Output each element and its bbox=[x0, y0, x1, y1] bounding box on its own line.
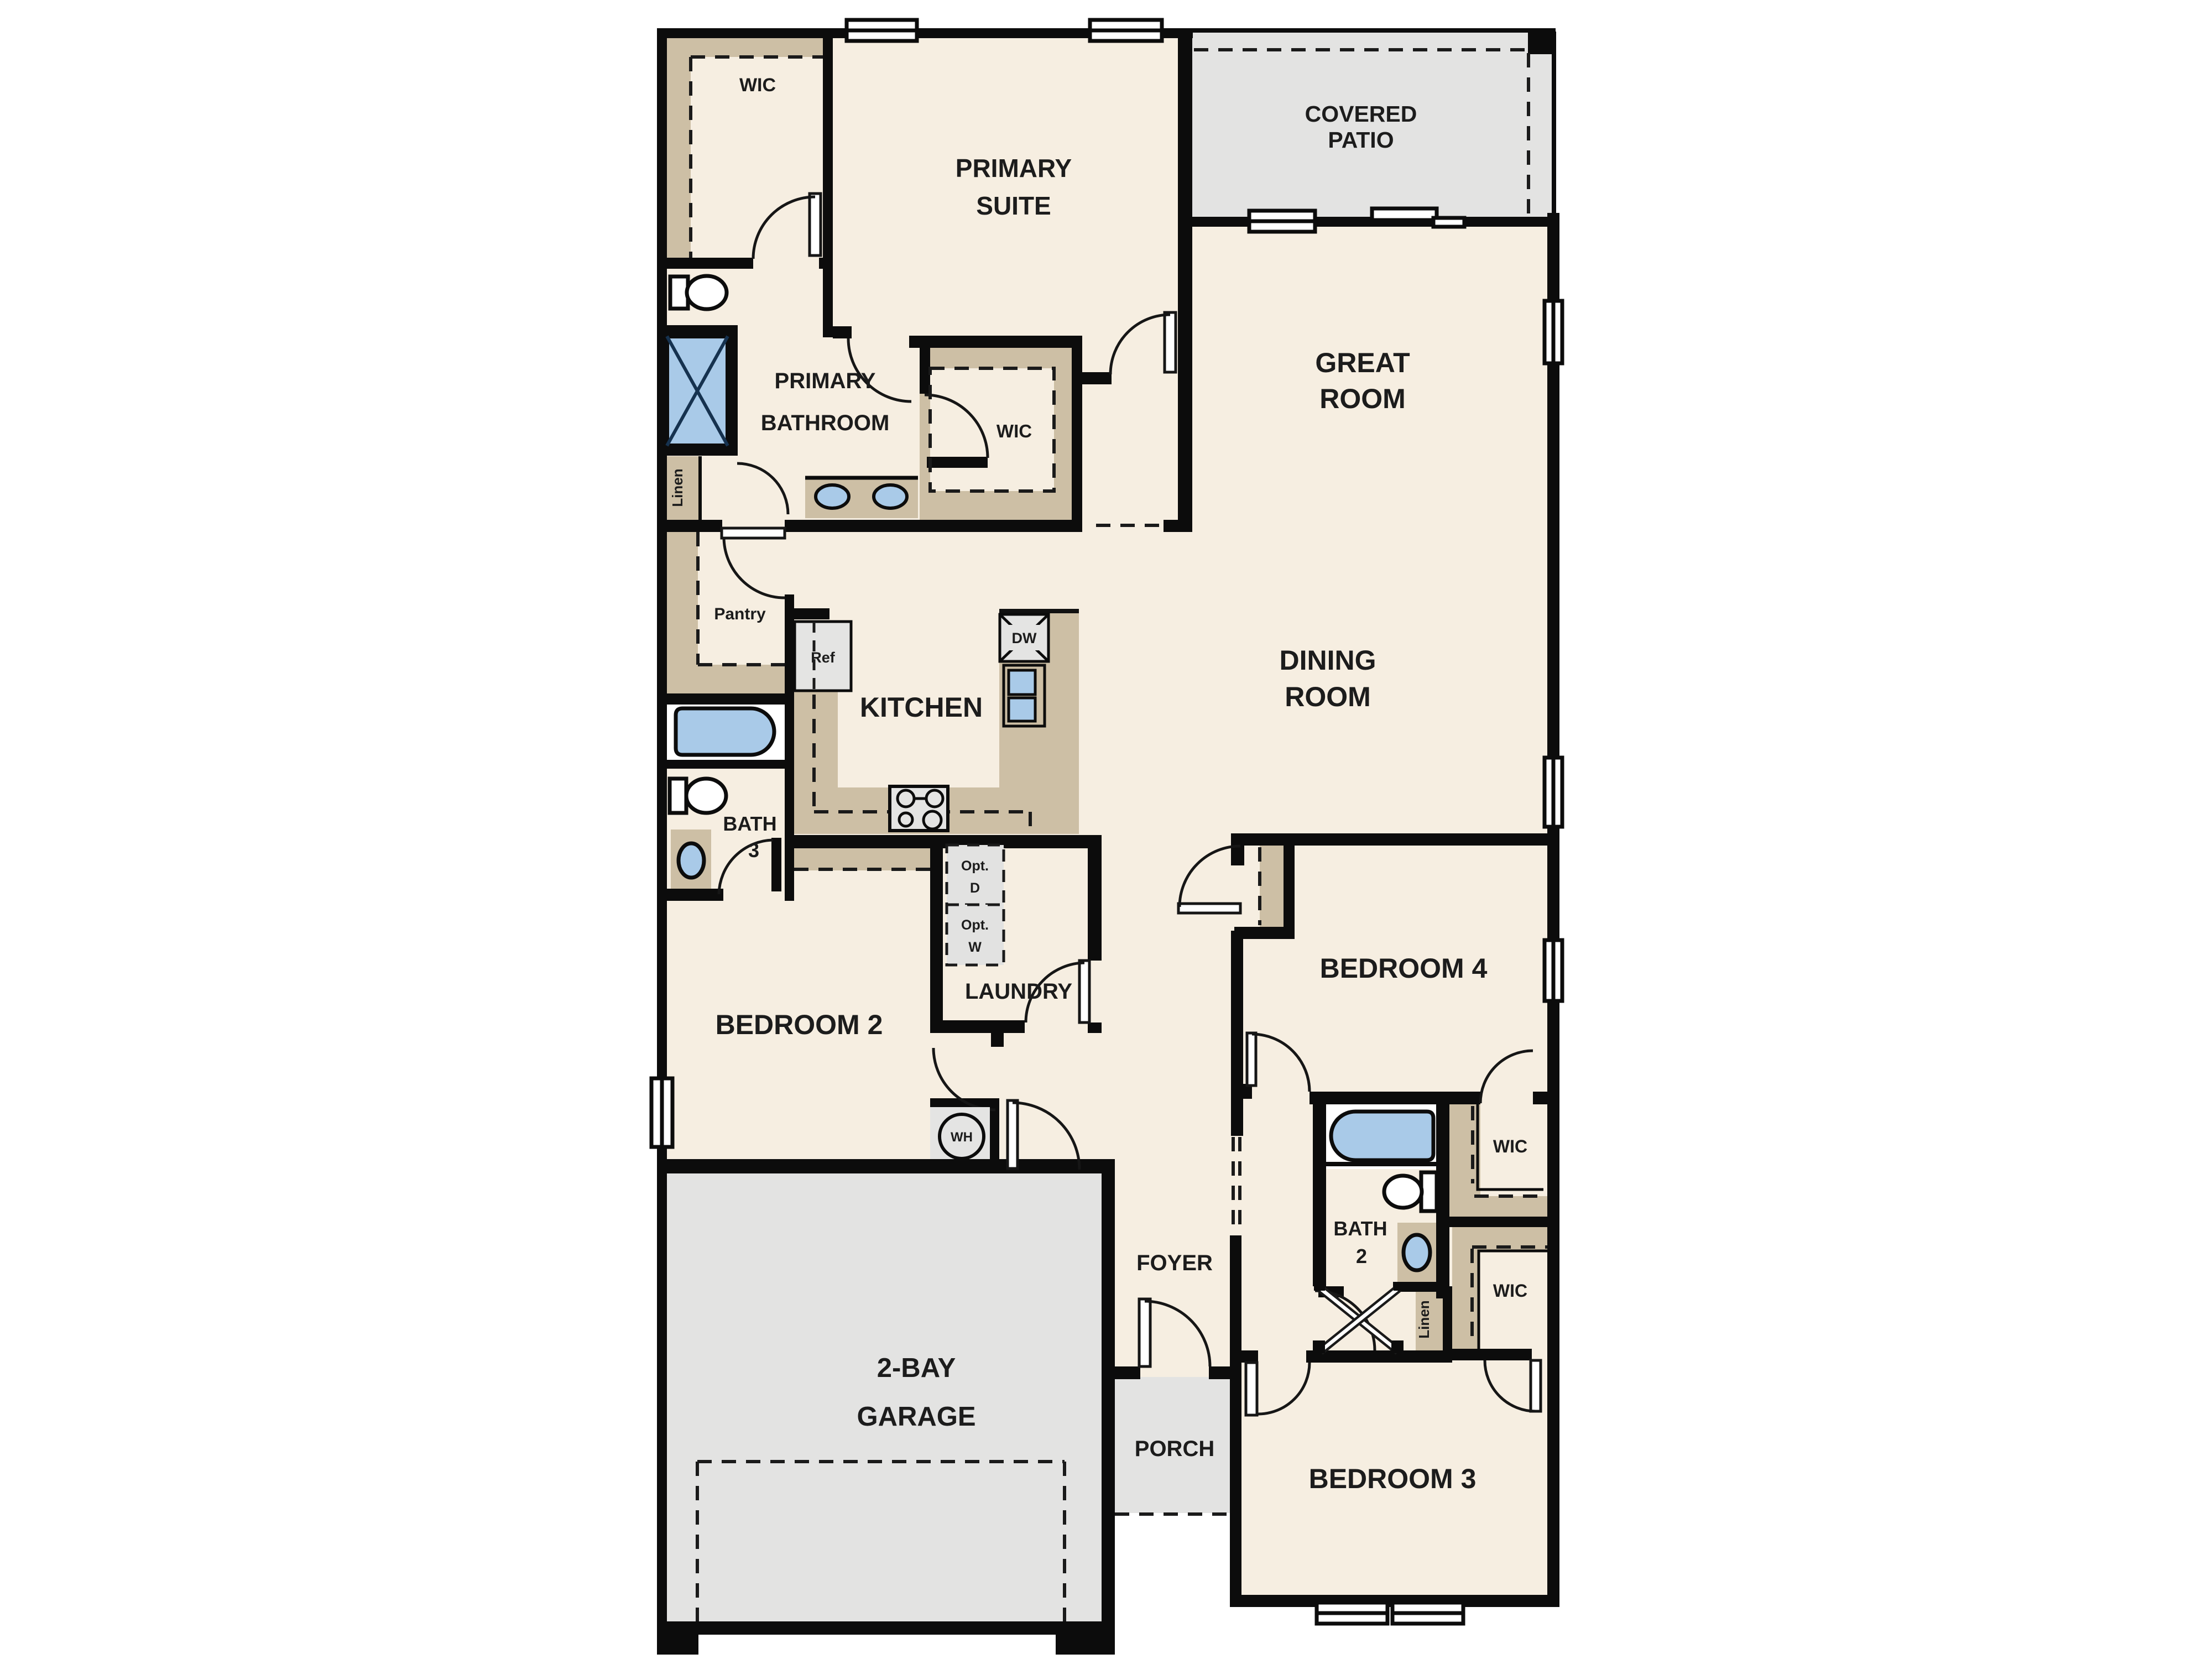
svg-text:WIC: WIC bbox=[997, 421, 1032, 441]
svg-text:Ref: Ref bbox=[811, 649, 836, 666]
svg-text:DINING: DINING bbox=[1280, 645, 1376, 676]
svg-text:BATH: BATH bbox=[1333, 1217, 1387, 1240]
svg-text:LAUNDRY: LAUNDRY bbox=[965, 979, 1072, 1004]
svg-text:KITCHEN: KITCHEN bbox=[860, 692, 983, 723]
svg-text:WIC: WIC bbox=[1493, 1136, 1527, 1156]
svg-text:BATH: BATH bbox=[723, 812, 776, 835]
svg-text:GARAGE: GARAGE bbox=[857, 1402, 975, 1432]
svg-text:Opt.: Opt. bbox=[961, 858, 989, 874]
svg-text:WIC: WIC bbox=[739, 75, 776, 96]
svg-text:DW: DW bbox=[1012, 630, 1037, 646]
svg-text:BATHROOM: BATHROOM bbox=[761, 411, 890, 435]
svg-text:PATIO: PATIO bbox=[1328, 127, 1394, 153]
svg-text:FOYER: FOYER bbox=[1136, 1251, 1213, 1275]
svg-text:GREAT: GREAT bbox=[1315, 347, 1410, 378]
svg-text:ROOM: ROOM bbox=[1285, 681, 1371, 712]
svg-text:D: D bbox=[970, 880, 980, 896]
svg-text:Linen: Linen bbox=[669, 468, 686, 507]
svg-text:BEDROOM 2: BEDROOM 2 bbox=[716, 1009, 883, 1040]
svg-text:WIC: WIC bbox=[1493, 1281, 1527, 1301]
svg-text:BEDROOM 4: BEDROOM 4 bbox=[1320, 953, 1488, 984]
svg-text:SUITE: SUITE bbox=[976, 191, 1051, 220]
svg-text:WH: WH bbox=[951, 1130, 973, 1145]
svg-text:Linen: Linen bbox=[1416, 1300, 1432, 1338]
svg-text:2-BAY: 2-BAY bbox=[877, 1353, 956, 1383]
svg-text:COVERED: COVERED bbox=[1305, 101, 1417, 127]
svg-text:W: W bbox=[968, 940, 982, 955]
svg-text:ROOM: ROOM bbox=[1319, 383, 1406, 414]
svg-text:BEDROOM 3: BEDROOM 3 bbox=[1309, 1463, 1477, 1494]
svg-text:PORCH: PORCH bbox=[1135, 1437, 1214, 1461]
svg-text:Opt.: Opt. bbox=[961, 917, 989, 933]
svg-text:3: 3 bbox=[748, 839, 759, 862]
svg-text:Pantry: Pantry bbox=[714, 605, 766, 623]
svg-text:PRIMARY: PRIMARY bbox=[775, 369, 876, 393]
svg-text:PRIMARY: PRIMARY bbox=[956, 154, 1072, 182]
svg-text:2: 2 bbox=[1356, 1245, 1367, 1267]
